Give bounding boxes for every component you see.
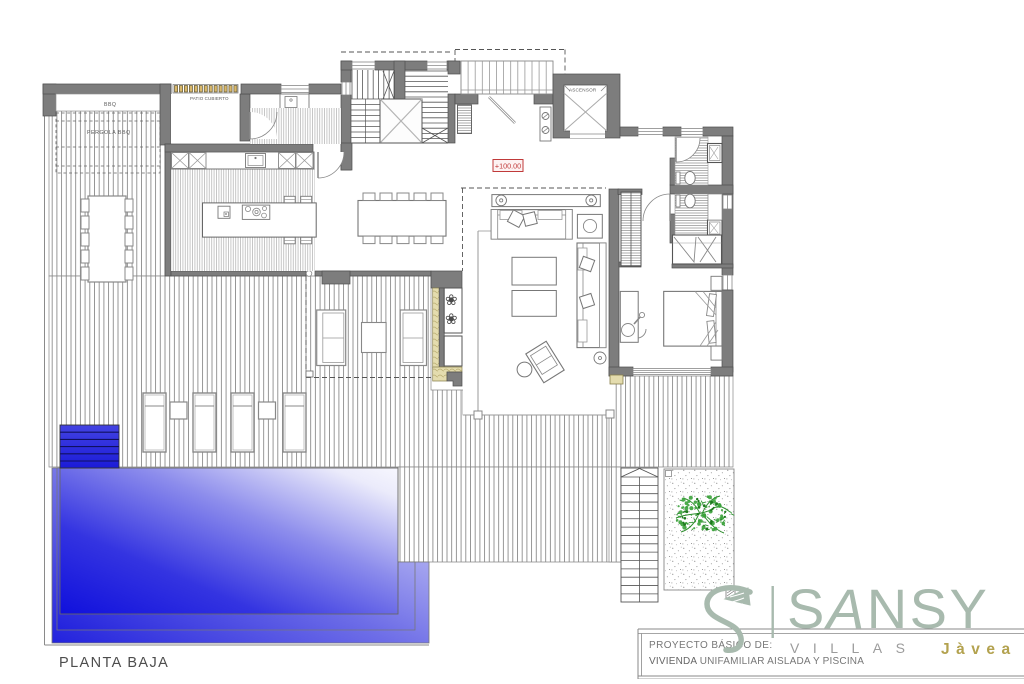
svg-text:PERGOLA BBQ: PERGOLA BBQ — [87, 130, 131, 136]
svg-text:BBQ: BBQ — [104, 102, 116, 108]
svg-text:ASCENSOR: ASCENSOR — [569, 88, 597, 93]
svg-text:+100.00: +100.00 — [495, 161, 521, 170]
svg-text:PROYECTO BÁSICO DE:: PROYECTO BÁSICO DE: — [649, 638, 773, 651]
svg-text:VILLAS: VILLAS — [790, 640, 918, 656]
svg-text:PATIO CUBIERTO: PATIO CUBIERTO — [190, 96, 229, 101]
svg-text:PLANTA BAJA: PLANTA BAJA — [59, 655, 169, 671]
svg-text:❀: ❀ — [445, 292, 458, 309]
svg-text:❀: ❀ — [445, 311, 458, 328]
svg-text:VIVIENDA UNIFAMILIAR AISLADA Y: VIVIENDA UNIFAMILIAR AISLADA Y PISCINA — [649, 656, 864, 667]
svg-text:SANSY: SANSY — [787, 577, 989, 640]
svg-text:Jàvea: Jàvea — [941, 641, 1017, 658]
